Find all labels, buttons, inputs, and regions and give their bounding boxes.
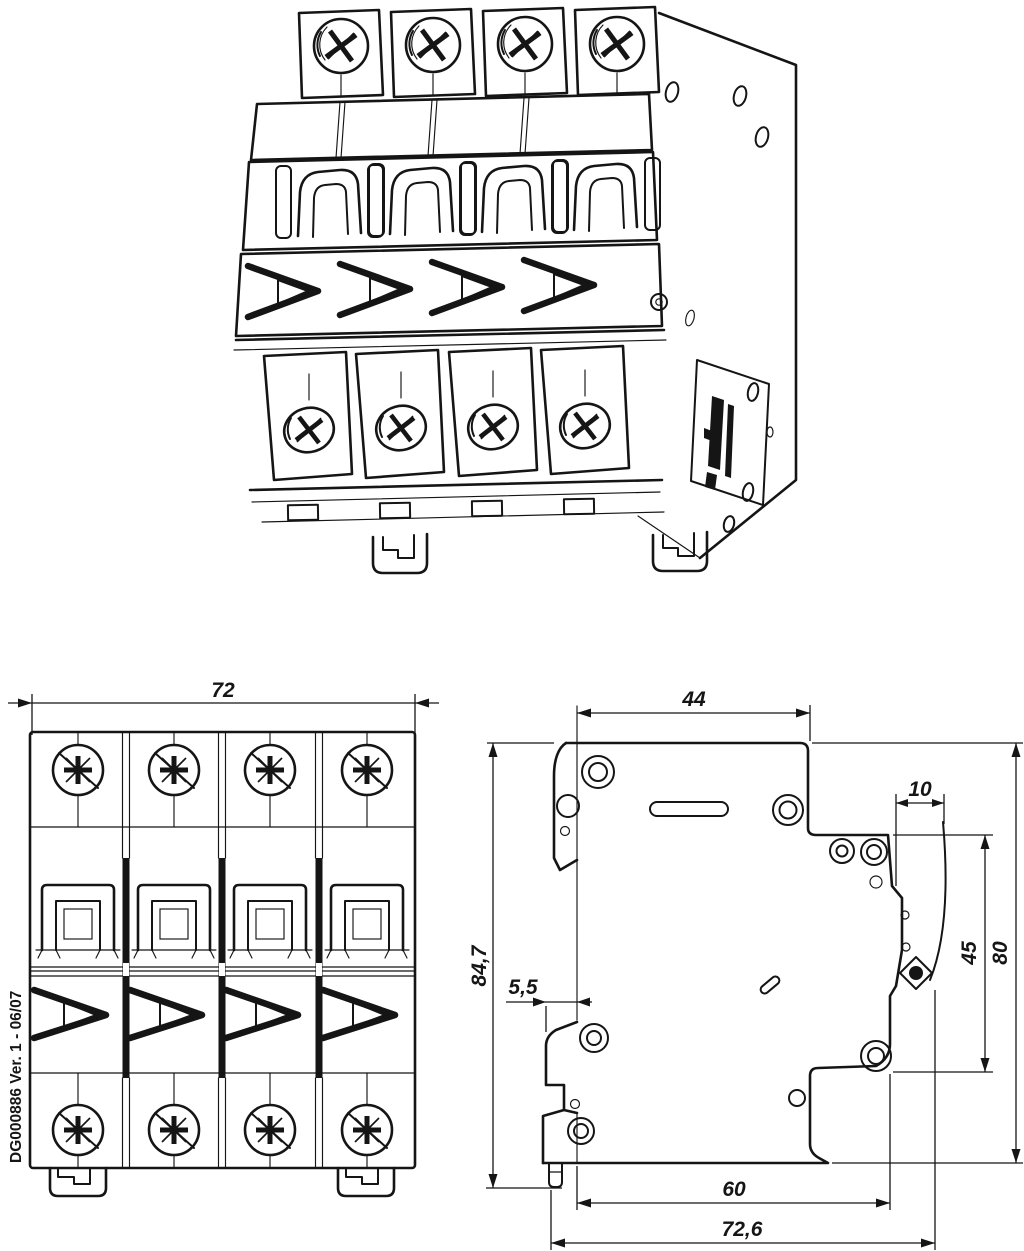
screw-terminal-icon — [53, 745, 103, 795]
screw-terminal-icon — [406, 18, 460, 72]
din-rail-clip — [338, 1168, 394, 1196]
terminal-cover-curve — [930, 822, 946, 980]
iso-base-band — [250, 480, 707, 573]
screw-terminal-icon — [53, 1105, 103, 1155]
toggle-lever — [228, 885, 312, 958]
screw-terminal-icon — [149, 1105, 199, 1155]
on-direction-arrow — [130, 990, 202, 1038]
dim-label-5-5: 5,5 — [508, 976, 538, 999]
side-vent-hole — [732, 85, 749, 107]
toggle-lever — [132, 885, 216, 958]
on-direction-arrow — [524, 260, 594, 311]
rivet — [574, 1124, 588, 1138]
screw-terminal-icon — [498, 17, 552, 71]
side-vent-hole — [664, 81, 681, 103]
dim-label-44: 44 — [681, 688, 706, 711]
side-details — [557, 756, 932, 1144]
rivet — [587, 1031, 601, 1045]
screw-terminal-icon — [371, 400, 431, 456]
iso-lever-band — [243, 152, 660, 250]
dim-label-72: 72 — [211, 679, 235, 702]
rivet — [868, 1048, 884, 1064]
terminal-screw — [900, 957, 932, 989]
dimension-step-45: 45 — [893, 835, 993, 1072]
isometric-view — [234, 7, 796, 573]
rivet — [780, 802, 797, 819]
screw-terminal-icon — [245, 1105, 295, 1155]
on-direction-arrow — [340, 264, 410, 315]
dimension-top-44: 44 — [577, 688, 810, 741]
product-marking: DG000886 Ver. 1 - 06/07 — [8, 991, 25, 1163]
screw-terminal-icon — [342, 1105, 392, 1155]
vent-slot — [650, 802, 728, 816]
on-direction-arrow — [226, 990, 298, 1038]
dim-label-45: 45 — [958, 941, 981, 966]
din-rail-hook — [653, 532, 707, 571]
screw-terminal-icon — [279, 402, 339, 458]
screw-terminal-icon — [149, 745, 199, 795]
dim-label-80: 80 — [989, 941, 1012, 965]
dimension-height-80: 80 — [812, 743, 1023, 1163]
dim-label-60: 60 — [722, 1178, 746, 1201]
dim-label-10: 10 — [908, 778, 932, 801]
iso-arrow-band — [234, 244, 666, 350]
toggle-lever — [325, 885, 409, 958]
din-rail-clip — [50, 1168, 106, 1196]
side-view: 44 10 84,7 5,5 — [468, 688, 1023, 1250]
iso-top-terminals — [299, 7, 659, 98]
side-vent-hole — [754, 126, 771, 148]
front-view: 72 — [8, 679, 439, 1196]
dimension-width-72: 72 — [8, 679, 439, 735]
front-bottom-terminals — [53, 1073, 392, 1168]
on-direction-arrow — [248, 266, 318, 317]
on-direction-arrow — [323, 990, 395, 1038]
side-vent-hole — [741, 482, 755, 502]
side-vent-hole — [746, 382, 760, 402]
front-arrows — [34, 990, 395, 1038]
screw-terminal-icon — [555, 398, 615, 454]
screw-terminal-icon — [463, 399, 523, 455]
front-top-terminals — [30, 732, 415, 827]
screw-terminal-icon — [590, 17, 644, 71]
rivet — [589, 763, 607, 781]
latch-pin — [759, 975, 781, 995]
rating-label-plate — [691, 360, 769, 505]
dimension-terminal-10: 10 — [896, 778, 944, 886]
screw-terminal-icon — [314, 19, 368, 73]
on-direction-arrow — [34, 990, 106, 1038]
dimension-base-60: 60 — [577, 1074, 890, 1210]
on-direction-arrow — [432, 262, 502, 313]
dimension-height-84-7: 84,7 — [468, 743, 562, 1188]
toggle-lever — [36, 885, 120, 958]
dimension-clip-5-5: 5,5 — [506, 976, 592, 1032]
iso-bottom-terminals — [264, 346, 629, 480]
iso-case-band — [251, 94, 652, 160]
dimension-depth-72-6: 72,6 — [551, 990, 935, 1250]
din-rail-hook — [373, 534, 427, 573]
dim-label-84-7: 84,7 — [468, 944, 491, 986]
screw-terminal-icon — [342, 745, 392, 795]
side-pivot — [651, 294, 667, 310]
technical-drawing-page: 72 — [0, 0, 1024, 1251]
drawing-canvas: 72 — [0, 0, 1024, 1251]
din-clip-spring-foot — [549, 1163, 562, 1187]
screw-terminal-icon — [245, 745, 295, 795]
dim-label-72-6: 72,6 — [722, 1218, 763, 1241]
